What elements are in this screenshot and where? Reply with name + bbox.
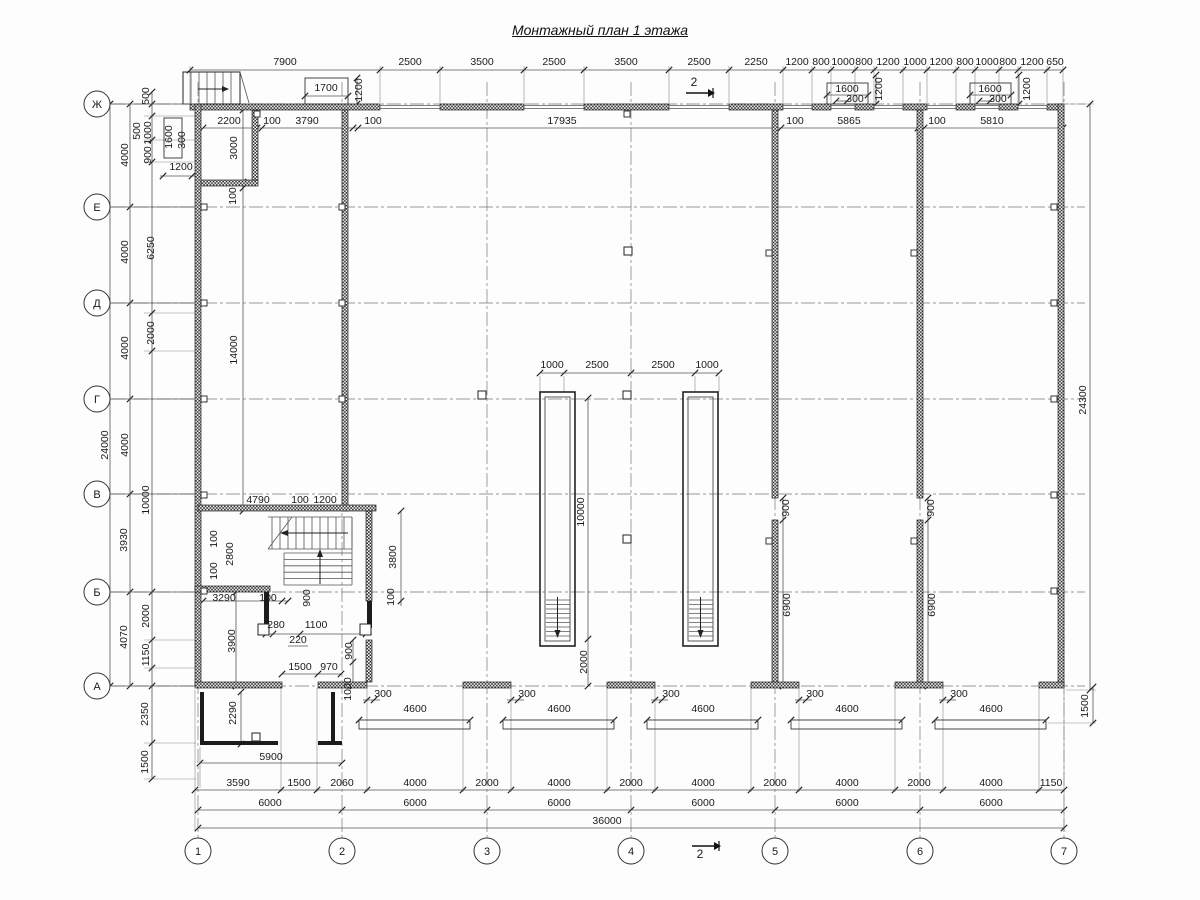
dim-text: 300 [950,688,968,700]
dim-text: 4000 [119,336,131,360]
axis-label: 4 [628,846,634,858]
dim-text: 300 [806,688,824,700]
dim-text: 2250 [744,56,768,68]
axis-label: Д [93,298,101,310]
dim-text: 4790 [246,494,270,506]
dim-text: 6000 [258,797,282,809]
dim-text: 24000 [99,430,111,459]
dim-text: 4000 [691,777,715,789]
dim-text: 10000 [140,485,152,514]
dim-text: 1500 [139,750,151,774]
dim-text: 1000 [975,56,999,68]
dim-text: 5900 [259,751,283,763]
dim-text: 2500 [542,56,566,68]
dim-text: 100 [786,115,804,127]
dim-text: 280 [267,619,285,631]
axis-label: Е [93,202,100,214]
extension-lines [144,66,1096,832]
dim-text: 14000 [228,335,240,364]
dim-text: 1200 [313,494,337,506]
dim-text: 5865 [837,115,861,127]
dim-text: 2500 [398,56,422,68]
dim-text: 100 [208,562,220,580]
dim-text: 300 [176,131,188,149]
dim-text: 6000 [691,797,715,809]
dim-text: 100 [208,530,220,548]
dim-text: 300 [374,688,392,700]
dim-text: 800 [812,56,830,68]
dim-text: 100 [259,592,277,604]
dim-text: 970 [320,661,338,673]
dim-text: 300 [846,93,864,105]
dim-text: 6000 [547,797,571,809]
dim-text: 4000 [119,143,131,167]
axis-label: Б [93,587,100,599]
dim-text: 1500 [1079,694,1091,718]
dim-text: 3900 [226,629,238,653]
axis-label: 2 [339,846,345,858]
axis-label: 1 [195,846,201,858]
fixtures-stairs-pits [164,72,1046,729]
dim-text: 4600 [979,703,1003,715]
dim-text: 5810 [980,115,1004,127]
dim-text: 6900 [926,593,938,617]
dim-text: 3000 [228,136,240,160]
dim-text: 1000 [540,359,564,371]
dim-text: 2000 [619,777,643,789]
dim-text: 2060 [330,777,354,789]
dim-text: 1200 [876,56,900,68]
dim-text: 900 [780,499,792,517]
axis-label: Г [94,394,100,406]
dim-text: 100 [227,187,239,205]
dim-text: 1100 [305,619,328,631]
dim-text: 900 [343,642,355,660]
dim-text: 2000 [475,777,499,789]
dim-text: 7900 [273,56,297,68]
dim-text: 2000 [907,777,931,789]
dim-text: 1600 [163,125,175,149]
dim-text: 4000 [119,433,131,457]
axis-label: 5 [772,846,778,858]
dim-text: 6000 [403,797,427,809]
section-mark-label: 2 [697,847,704,861]
dim-text: 3930 [118,528,130,552]
dim-text: 2500 [687,56,711,68]
dim-text: 2800 [224,542,236,566]
dim-text: 100 [364,115,382,127]
axis-label: 7 [1061,846,1067,858]
dim-text: 1500 [288,661,312,673]
dim-text: 1200 [785,56,809,68]
axis-label: В [93,489,100,501]
dim-text: 4600 [403,703,427,715]
plan-canvas: 7900250035002500350025002250120080010008… [0,0,1200,900]
axis-label: 3 [484,846,490,858]
dim-text: 4600 [547,703,571,715]
floor-plan-drawing: Монтажный план 1 этажа 79002500350025003… [0,0,1200,900]
dim-text: 6000 [979,797,1003,809]
dim-text: 2350 [139,702,151,726]
dim-text: 1200 [929,56,953,68]
dim-text: 800 [956,56,974,68]
dim-text: 1200 [1021,77,1033,101]
dim-text: 2000 [140,604,152,628]
dim-text: 36000 [592,815,621,827]
dim-text: 24300 [1077,385,1089,414]
dim-text: 1150 [1040,777,1063,789]
dim-text: 1200 [353,78,365,102]
dim-text: 3500 [470,56,494,68]
section-marks: 22 [686,75,721,861]
dim-text: 650 [1046,56,1064,68]
dim-text: 1000 [142,121,154,145]
column-markers [201,111,1057,741]
dim-text: 1150 [140,644,152,667]
dim-text: 3500 [614,56,638,68]
dim-text: 1500 [287,777,311,789]
dim-text: 900 [301,589,313,607]
dim-text: 1200 [873,77,885,101]
dim-text: 6000 [835,797,859,809]
section-mark-label: 2 [691,75,698,89]
dim-text: 3800 [387,545,399,569]
dim-text: 300 [989,93,1007,105]
dim-text: 2500 [585,359,609,371]
dim-text: 500 [140,87,152,105]
dim-text: 100 [385,588,397,606]
dimension-texts: 7900250035002500350025002250120080010008… [99,56,1091,827]
dim-text: 4070 [118,625,130,649]
dim-text: 3790 [295,115,319,127]
dim-text: 4000 [119,240,131,264]
dim-text: 3290 [212,592,236,604]
dim-text: 2000 [763,777,787,789]
dim-text: 4600 [691,703,715,715]
dim-text: 6900 [781,593,793,617]
dim-text: 1000 [695,359,719,371]
axis-label: 6 [917,846,923,858]
dim-text: 4000 [403,777,427,789]
dim-text: 900 [142,146,154,164]
dim-text: 3590 [226,777,250,789]
dim-text: 1200 [1020,56,1044,68]
dim-text: 6250 [145,236,157,260]
axis-label: Ж [92,99,102,111]
grid-axes-lines [111,82,1085,838]
dim-text: 800 [999,56,1017,68]
dim-text: 300 [518,688,536,700]
dim-text: 1700 [314,82,338,94]
dim-text: 2000 [145,321,157,345]
dim-text: 800 [855,56,873,68]
dim-text: 2500 [651,359,675,371]
partition-walls [200,592,372,745]
dim-text: 1000 [342,677,354,701]
dim-text: 17935 [547,115,576,127]
dim-text: 4600 [835,703,859,715]
dim-text: 2290 [227,701,239,725]
dim-text: 4000 [547,777,571,789]
dim-text: 2000 [578,650,590,674]
dim-text: 4000 [979,777,1003,789]
dim-text: 10000 [575,497,587,526]
dim-text: 100 [928,115,946,127]
dim-text: 2200 [217,115,241,127]
dim-text: 300 [662,688,680,700]
dim-text: 100 [263,115,281,127]
dim-text: 1000 [903,56,927,68]
dim-text: 1000 [831,56,855,68]
axis-label: А [93,681,101,693]
dim-text: 900 [925,499,937,517]
dim-text: 220 [289,634,307,646]
dim-text: 1200 [169,161,193,173]
dim-text: 4000 [835,777,859,789]
dim-text: 100 [291,494,309,506]
